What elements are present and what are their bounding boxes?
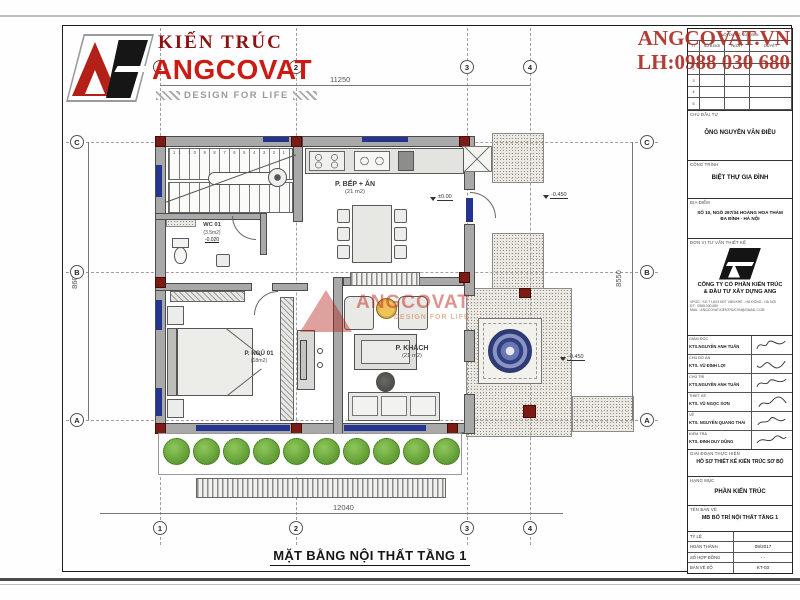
- column: [291, 136, 302, 147]
- signer-rows: GIÁM ĐỐCKTS.NGUYỄN ANH TUẤN CHỦ ĐỒ ÁNKTS…: [688, 336, 792, 450]
- level-flag-icon: [560, 357, 566, 361]
- company-name-line2: & ĐẦU TƯ XÂY DỰNG ANG: [690, 289, 790, 297]
- signature-icon: [755, 337, 789, 353]
- grid-bubble-top-3: 3: [460, 60, 474, 74]
- wall-right-seg3: [464, 330, 475, 362]
- signer-row: GIÁM ĐỐCKTS.NGUYỄN ANH TUẤN: [688, 336, 792, 355]
- column-porch: [523, 405, 536, 418]
- meta-label: HOÀN THÀNH: [688, 542, 734, 552]
- signer-name: KTS.NGUYỄN ANH TUẤN: [689, 344, 750, 349]
- speaker-dot: [317, 348, 323, 354]
- project-label: CÔNG TRÌNH: [690, 162, 790, 167]
- column-porch: [519, 288, 531, 298]
- shrub: [283, 438, 310, 465]
- signer-name: KTS. NGUYỄN QUANG THÁI: [689, 420, 750, 425]
- level-main-text: ±0.00: [437, 194, 453, 201]
- signer-row: THIẾT KẾKTS. VŨ NGỌC SƠN: [688, 393, 792, 412]
- wc-level: -0.020: [186, 237, 238, 243]
- title-block: NỘI DUNG SỬA ĐỔI TT SỬA ĐỔI NGÀY DUYỆT 1…: [687, 28, 793, 574]
- location-line2: BA ĐÌNH - HÀ NỘI: [690, 216, 790, 222]
- meta-label: SỐ HỢP ĐỒNG: [688, 553, 734, 563]
- window-bottom-living: [344, 425, 426, 431]
- nightstand: [167, 399, 184, 418]
- shrub: [313, 438, 340, 465]
- level-marker-main: ±0.00: [430, 194, 453, 201]
- consultant-label: ĐƠN VỊ TƯ VẤN THIẾT KẾ: [690, 240, 790, 245]
- dining-chair: [337, 209, 350, 223]
- contact-website: ANGCOVAT.VN: [530, 26, 790, 50]
- logo-top-text: KIẾN TRÚC: [158, 32, 283, 54]
- window-top-stair: [263, 137, 289, 142]
- grid-bubble-right-B: B: [640, 265, 654, 279]
- contact-phone: LH:0988 030 680: [530, 50, 790, 74]
- contact-block: ANGCOVAT.VN LH:0988 030 680: [530, 26, 790, 74]
- tagline-bar-icon: [293, 91, 317, 100]
- kitchen-label: P. BẾP + ĂN (21 m2): [312, 180, 398, 195]
- stove: [309, 151, 345, 171]
- drawing-label: TÊN BẢN VẼ: [690, 507, 790, 512]
- tv-screen: [300, 340, 307, 380]
- kitchen-hob-dark: [398, 151, 414, 171]
- kitchen-area: (21 m2): [312, 189, 398, 195]
- dim-line-right: [632, 142, 633, 420]
- dim-top-text: 11250: [330, 75, 350, 84]
- emblem-white-slash: [114, 66, 147, 72]
- company-info3: MAIL : ANGCOVAT.KIENTRUCVN@GMAIL.COM: [690, 308, 790, 312]
- armchair: [398, 296, 428, 330]
- signer-name: KTS.NGUYỄN ANH TUẤN: [689, 382, 750, 387]
- grid-bubble-right-C: C: [640, 135, 654, 149]
- wall-bedroom-top-b: [272, 283, 308, 291]
- category-value: PHẦN KIẾN TRÚC: [690, 488, 790, 496]
- meta-row: HOÀN THÀNH 09/2017: [688, 541, 792, 552]
- signature-icon: [755, 394, 789, 410]
- meta-row: BẢN VẼ SỐ KT-03: [688, 562, 792, 573]
- meta-rows: TỶ LỆ HOÀN THÀNH 09/2017 SỐ HỢP ĐỒNG - -…: [688, 532, 792, 573]
- dim-right-text: 8550: [614, 270, 623, 287]
- stage-label: GIAI ĐOẠN THỰC HIỆN: [690, 451, 790, 456]
- wc-sink: [216, 254, 230, 267]
- bed-headboard: [167, 328, 177, 396]
- stage-section: GIAI ĐOẠN THỰC HIỆN HỒ SƠ THIẾT KẾ KIẾN …: [688, 450, 792, 477]
- stair-step-numbers: 11 10 9 8 7 6 5 4 3 2 1: [173, 150, 291, 155]
- wc-name: WC 01: [186, 222, 238, 230]
- shrub: [193, 438, 220, 465]
- meta-value: 09/2017: [734, 544, 792, 549]
- plant: [376, 372, 395, 392]
- revision-row-num: 4: [688, 87, 700, 99]
- shrub: [403, 438, 430, 465]
- revision-row-num: 5: [688, 98, 700, 110]
- shrub: [223, 438, 250, 465]
- shrub: [163, 438, 190, 465]
- investor-section: CHỦ ĐẦU TƯ ÔNG NGUYỄN VĂN ĐIỀU: [688, 111, 792, 161]
- shrub: [433, 438, 460, 465]
- signer-row: CHỦ ĐỒ ÁNKTS. VŨ ĐÌNH LỢI: [688, 355, 792, 374]
- shrub: [373, 438, 400, 465]
- level-terrace-text: -0.450: [550, 192, 568, 199]
- signature-icon: [755, 356, 789, 372]
- dining-chair: [337, 227, 350, 241]
- living-label: P. KHÁCH (21 m2): [382, 344, 442, 359]
- company-info1: VPGD : SỐ 7 LK03 KĐT VĂN KHÊ - HÀ ĐÔNG -…: [690, 300, 790, 304]
- signer-row: CHỦ TRÌKTS.NGUYỄN ANH TUẤN: [688, 374, 792, 393]
- living-name: P. KHÁCH: [382, 344, 442, 353]
- shrub: [253, 438, 280, 465]
- grid-bubble-bottom-1: 1: [153, 521, 167, 535]
- signer-role: THIẾT KẾ: [689, 394, 750, 398]
- grid-line-4: [530, 28, 531, 545]
- project-name: BIỆT THỰ GIA ĐÌNH: [690, 174, 790, 182]
- window-left-1: [156, 165, 162, 197]
- bedroom-label: P. NGỦ 01 (18m2): [236, 350, 282, 364]
- revision-row-num: 3: [688, 75, 700, 87]
- grid-bubble-left-B: B: [70, 265, 84, 279]
- medallion: [488, 329, 532, 373]
- wall-top: [155, 136, 475, 147]
- porch-step-block: [572, 396, 634, 432]
- column: [155, 277, 166, 288]
- grid-bubble-left-A: A: [70, 413, 84, 427]
- wall-stair-kitchen: [293, 136, 303, 222]
- investor-name: ÔNG NGUYỄN VĂN ĐIỀU: [690, 129, 790, 137]
- signer-name: KTS. VŨ ĐÌNH LỢI: [689, 363, 750, 368]
- drawing-section: TÊN BẢN VẼ MB BỐ TRÍ NỘI THẤT TẦNG 1: [688, 506, 792, 532]
- signer-name: KTS. VŨ NGỌC SƠN: [689, 401, 750, 406]
- signer-name: KTS. ĐINH DUY DŨNG: [689, 439, 750, 444]
- category-label: HẠNG MỤC: [690, 478, 790, 483]
- stair-newel: [268, 168, 287, 187]
- bedroom-area: (18m2): [236, 358, 282, 364]
- dining-chair: [394, 209, 407, 223]
- stage-value: HỒ SƠ THIẾT KẾ KIẾN TRÚC SƠ BỘ: [690, 459, 790, 466]
- dining-chair: [394, 245, 407, 259]
- logo-tagline-row: DESIGN FOR LIFE: [156, 90, 317, 101]
- meta-value: - -: [734, 555, 792, 560]
- meta-label: BẢN VẼ SỐ: [688, 563, 734, 573]
- bedroom-wardrobe-side: [280, 297, 294, 421]
- kitchen-name: P. BẾP + ĂN: [312, 180, 398, 189]
- signature-icon: [755, 375, 789, 391]
- investor-label: CHỦ ĐẦU TƯ: [690, 112, 790, 117]
- window-left-2: [156, 300, 162, 330]
- signer-role: CHỦ ĐỒ ÁN: [689, 356, 750, 360]
- location-section: ĐỊA ĐIỂM SỐ 10, NGÕ 267/34 HOÀNG HOA THÁ…: [688, 199, 792, 239]
- window-top-kitchen: [362, 137, 408, 142]
- wall-right-seg4: [464, 394, 475, 434]
- dim-line-bottom: [100, 513, 563, 514]
- wall-wc-right: [260, 213, 267, 255]
- dining-table: [352, 205, 392, 263]
- company-logo: KIẾN TRÚC ANGCOVAT DESIGN FOR LIFE: [66, 30, 296, 108]
- sheet-bottom-rule-dark: [0, 578, 800, 581]
- terrace-hatch-upper: [492, 133, 544, 183]
- level-flag-icon: [543, 195, 549, 199]
- sheet-bottom-rule-light: [0, 584, 800, 585]
- armchair: [344, 296, 374, 330]
- grid-bubble-bottom-2: 2: [289, 521, 303, 535]
- meta-value: KT-03: [734, 565, 792, 570]
- drawing-sheet: 11250 12040 8600 8550 1 2 3 4 1 2 3 4 C …: [0, 0, 800, 600]
- sofa-cushion: [410, 396, 436, 416]
- signer-role: VẼ: [689, 413, 750, 417]
- tagline-bar-icon: [156, 91, 180, 100]
- window-bottom-bedroom: [196, 425, 290, 431]
- plan-title: MẶT BẰNG NỘI THẤT TẦNG 1: [270, 548, 470, 566]
- level-marker-porch: -0.450: [560, 354, 585, 361]
- drawing-value: MB BỐ TRÍ NỘI THẤT TẦNG 1: [690, 515, 790, 522]
- project-section: CÔNG TRÌNH BIỆT THỰ GIA ĐÌNH: [688, 161, 792, 199]
- skylight-box: [462, 146, 492, 172]
- dining-chair: [337, 245, 350, 259]
- sheet-top-rule: [0, 15, 800, 17]
- column: [459, 272, 470, 283]
- dim-line-left: [88, 142, 89, 420]
- sofa-cushion: [381, 396, 407, 416]
- consultant-logo-icon: [719, 248, 761, 280]
- bedroom-wardrobe-top: [170, 291, 245, 302]
- logo-tagline: DESIGN FOR LIFE: [184, 90, 289, 101]
- dim-bottom-text: 12040: [333, 503, 354, 512]
- grid-bubble-bottom-3: 3: [460, 521, 474, 535]
- consultant-section: ĐƠN VỊ TƯ VẤN THIẾT KẾ CÔNG TY CỔ PHẦN K…: [688, 239, 792, 336]
- logo-main-text: ANGCOVAT: [152, 54, 312, 86]
- meta-label: TỶ LỆ: [688, 532, 734, 542]
- logo-emblem-icon: [66, 34, 154, 102]
- column: [155, 136, 166, 147]
- partition-cabinet: [350, 272, 420, 286]
- sofa-cushion: [352, 396, 378, 416]
- location-label: ĐỊA ĐIỂM: [690, 200, 790, 205]
- wall-bedroom-top-a: [155, 283, 252, 291]
- grid-bubble-left-C: C: [70, 135, 84, 149]
- wc-label: WC 01 (3.5m2) -0.020: [186, 222, 238, 243]
- wall-partition-living: [333, 277, 343, 434]
- level-porch-text: -0.450: [567, 354, 585, 361]
- kitchen-sink: [354, 151, 390, 171]
- wall-right-seg2: [464, 224, 475, 296]
- grid-bubble-bottom-4: 4: [523, 521, 537, 535]
- bedroom-name: P. NGỦ 01: [236, 350, 282, 358]
- toilet-bowl: [174, 247, 187, 264]
- meta-row: TỶ LỆ: [688, 532, 792, 542]
- signer-role: CHỦ TRÌ: [689, 375, 750, 379]
- dining-chair: [394, 227, 407, 241]
- window-left-3: [156, 388, 162, 416]
- signature-icon: [755, 413, 789, 429]
- meta-row: SỐ HỢP ĐỒNG - -: [688, 552, 792, 563]
- side-table-round: [376, 298, 397, 319]
- grid-bubble-right-A: A: [640, 413, 654, 427]
- category-section: HẠNG MỤC PHẦN KIẾN TRÚC: [688, 477, 792, 506]
- signer-role: KIỂM TRA: [689, 432, 750, 436]
- location-line1: SỐ 10, NGÕ 267/34 HOÀNG HOA THÁM: [690, 210, 790, 216]
- company-name-line1: CÔNG TY CỔ PHẦN KIẾN TRÚC: [690, 282, 790, 290]
- signer-role: GIÁM ĐỐC: [689, 337, 750, 341]
- living-area: (21 m2): [382, 353, 442, 359]
- speaker-dot: [317, 362, 323, 368]
- shrub: [343, 438, 370, 465]
- level-flag-icon: [430, 197, 436, 201]
- level-marker-terrace: -0.450: [543, 192, 568, 199]
- nightstand: [167, 306, 184, 325]
- consultant-logo-slash: [726, 262, 754, 266]
- wc-area: (3.5m2): [186, 230, 238, 236]
- signer-row: VẼKTS. NGUYỄN QUANG THÁI: [688, 412, 792, 431]
- signer-row: KIỂM TRAKTS. ĐINH DUY DŨNG: [688, 431, 792, 450]
- signature-icon: [755, 432, 789, 448]
- front-steps-band: [196, 478, 446, 498]
